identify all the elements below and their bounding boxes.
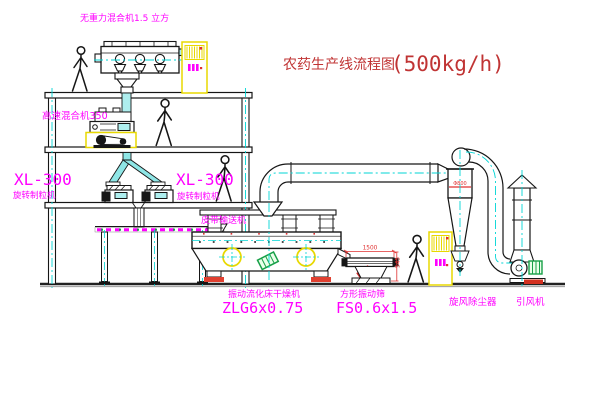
person-roof	[73, 47, 88, 91]
cabinet-lamp	[446, 264, 448, 266]
drawing-canvas: 无重力混合机1.5 立方 高速混合机350 XL-300 旋转制粒机 XL-30…	[0, 0, 600, 403]
floor-slab-2	[45, 147, 252, 153]
label-cyclone: 旋风除尘器	[449, 296, 497, 308]
cabinet-indicator	[196, 64, 199, 71]
cabinet-lamp	[200, 67, 202, 69]
cabinet-indicator	[439, 259, 442, 266]
dryer-mount-pad	[311, 277, 331, 282]
label-high-speed-mixer: 高速混合机350	[42, 110, 108, 122]
label-belt-conveyor: 皮带输送机	[201, 214, 246, 226]
floor-slab-3	[45, 203, 252, 209]
cad-flow-diagram: 无重力混合机1.5 立方 高速混合机350 XL-300 旋转制粒机 XL-30…	[0, 0, 600, 403]
label-granulator-right-model: XL-300	[176, 170, 234, 189]
label-granulator-left-model: XL-300	[14, 170, 72, 189]
cyclone-outlet-elbow	[452, 148, 470, 166]
dim-cyclone-diameter: Φ800	[453, 181, 466, 187]
fan-suction-pipe	[464, 149, 512, 274]
person-ground	[408, 235, 423, 282]
discharge-chute	[134, 208, 144, 227]
screen-deck	[346, 258, 394, 267]
control-cabinet-roof	[182, 42, 207, 93]
y-splitter-pipe	[106, 153, 165, 187]
page-title-capacity: (500kg/h)	[391, 52, 505, 76]
dim-screen-height: 545	[396, 257, 402, 268]
cabinet-indicator	[192, 64, 195, 71]
label-screen-model: FS0.6x1.5	[336, 299, 417, 317]
label-fan: 引风机	[516, 296, 545, 308]
label-granulator-left-name: 旋转制粒机	[13, 190, 56, 201]
label-gravity-mixer: 无重力混合机1.5 立方	[80, 12, 169, 24]
control-cabinet-screen	[429, 232, 452, 285]
cabinet-indicator	[435, 259, 438, 266]
dim-screen-length: 1500	[363, 246, 378, 252]
gravity-mixer	[94, 42, 190, 94]
induced-draft-fan	[508, 170, 545, 287]
person-floor2	[156, 99, 171, 145]
fan-base-pad	[524, 280, 543, 285]
cabinet-lamp	[446, 237, 448, 239]
label-dryer-model: ZLG6x0.75	[222, 299, 303, 317]
feed-pipe	[122, 93, 131, 112]
ground-line	[40, 284, 565, 287]
mixer-discharge-cone	[117, 79, 137, 87]
page-title: 农药生产线流程图	[283, 57, 395, 73]
dryer-mount-pad	[204, 277, 224, 282]
cabinet-indicator	[188, 64, 191, 71]
roof-slab	[45, 93, 252, 99]
label-granulator-right-name: 旋转制粒机	[177, 191, 220, 202]
cabinet-lamp	[200, 47, 203, 50]
cabinet-indicator	[443, 259, 446, 266]
